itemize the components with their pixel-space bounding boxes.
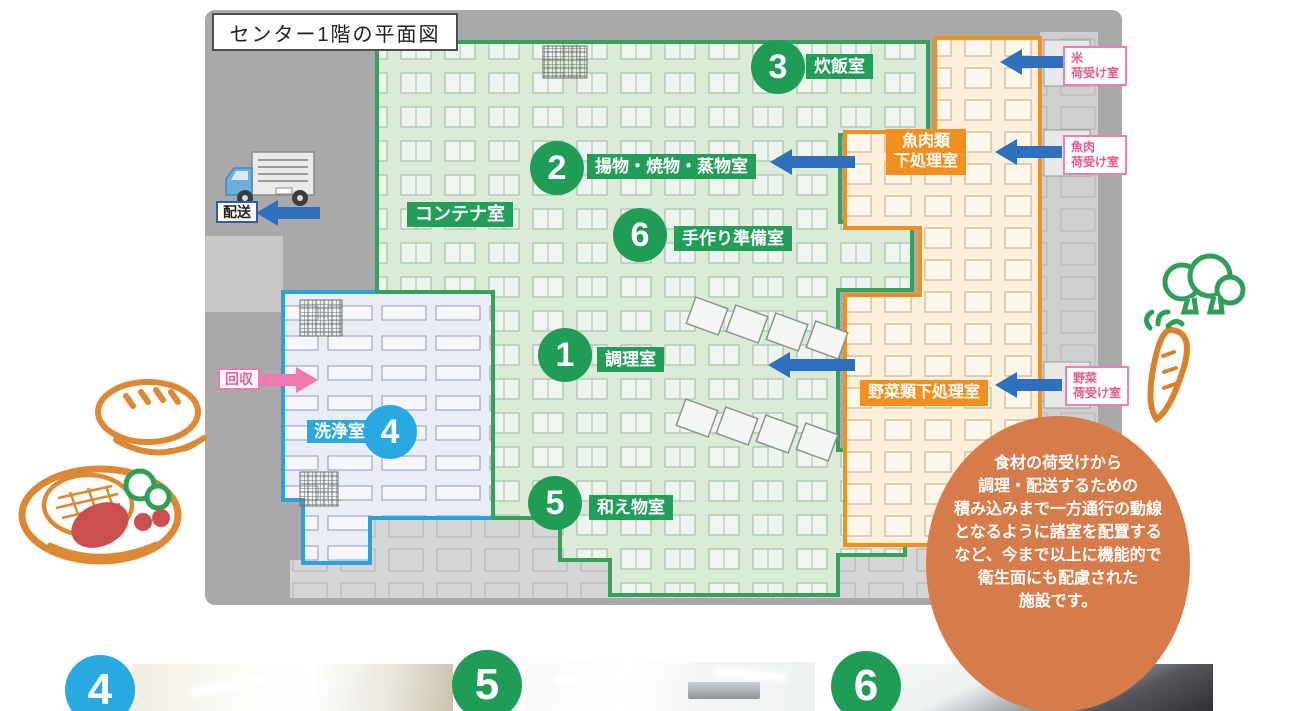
rice-receiving-line1: 米	[1071, 51, 1119, 66]
photo2-light-right	[715, 669, 785, 680]
label-container-room: コンテナ室	[407, 202, 513, 227]
label-rice-cooking-room: 炊飯室	[806, 54, 873, 79]
label-cooking-room: 調理室	[597, 347, 664, 372]
meal-plate-illustration	[22, 469, 178, 561]
vegetable-receiving-line1: 野菜	[1073, 371, 1121, 386]
photo-aemono-room	[525, 662, 815, 711]
floor-plan-page: センター1階の平面図 1 2 3 4 5 6 調理室 揚物・焼物・蒸物室 炊飯室…	[0, 0, 1292, 711]
room-marker-2: 2	[530, 141, 584, 195]
bread-illustration	[98, 382, 204, 453]
callout-line-5: など、今まで以上に機能的で	[954, 544, 1161, 567]
label-vegetable-prep-room: 野菜類下処理室	[860, 380, 988, 406]
room-marker-1: 1	[538, 328, 592, 382]
fish-receiving-line1: 魚肉	[1071, 140, 1119, 155]
vegetable-receiving-line2: 荷受け室	[1073, 386, 1121, 401]
carrot-illustration	[1143, 312, 1191, 422]
label-handmade-prep-room: 手作り準備室	[674, 226, 792, 251]
photo-washing-room	[132, 664, 453, 711]
broccoli-illustration	[1165, 256, 1243, 312]
rice-receiving-line2: 荷受け室	[1071, 66, 1119, 81]
label-aemono-room: 和え物室	[589, 495, 673, 520]
building-annex-left	[205, 236, 283, 312]
photo-marker-5: 5	[452, 650, 522, 711]
photo2-ac-unit	[688, 682, 760, 699]
label-vegetable-receiving-room: 野菜 荷受け室	[1065, 366, 1129, 406]
facility-description-callout: 食材の荷受けから 調理・配送するための 積み込みまで一方通行の動線 となるように…	[926, 416, 1190, 711]
label-fish-meat-prep-line1: 魚肉類	[902, 132, 950, 152]
callout-line-3: 積み込みまで一方通行の動線	[954, 498, 1162, 521]
label-washing-room: 洗浄室	[307, 420, 372, 443]
callout-line-7: 施設です。	[1019, 590, 1097, 613]
callout-line-4: となるように諸室を配置する	[954, 521, 1162, 544]
room-marker-6: 6	[613, 208, 667, 262]
label-rice-receiving-room: 米 荷受け室	[1063, 46, 1127, 86]
callout-line-2: 調理・配送するための	[978, 475, 1138, 498]
label-fish-meat-prep-room: 魚肉類 下処理室	[886, 129, 966, 175]
label-collection: 回収	[218, 368, 260, 390]
room-marker-5: 5	[528, 476, 582, 530]
label-fry-grill-steam-room: 揚物・焼物・蒸物室	[587, 154, 756, 179]
label-delivery: 配送	[216, 201, 258, 223]
map-title: センター1階の平面図	[212, 13, 458, 51]
label-fish-receiving-room: 魚肉 荷受け室	[1063, 135, 1127, 175]
fish-receiving-line2: 荷受け室	[1071, 155, 1119, 170]
room-marker-3: 3	[751, 40, 805, 94]
photo1-light	[192, 674, 282, 695]
photo2-light-left	[555, 670, 625, 682]
callout-line-6: 衛生面にも配慮された	[978, 567, 1138, 590]
label-fish-meat-prep-line2: 下処理室	[894, 152, 958, 172]
callout-line-1: 食材の荷受けから	[994, 452, 1122, 475]
